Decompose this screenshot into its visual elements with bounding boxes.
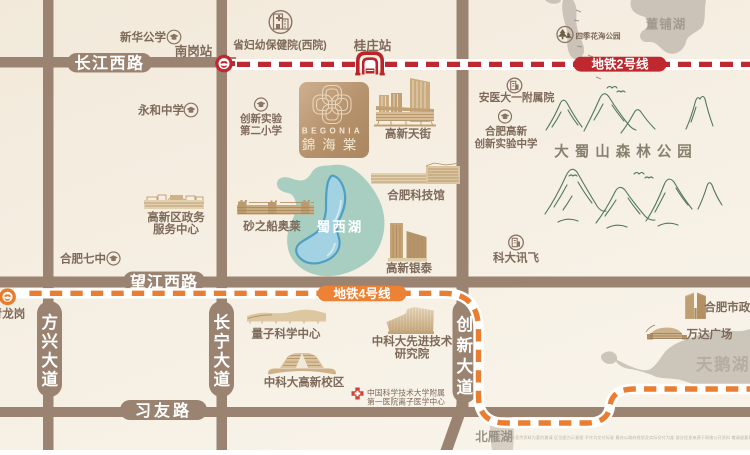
svg-text:董铺湖: 董铺湖 xyxy=(646,17,687,32)
svg-text:安医大一附属院: 安医大一附属院 xyxy=(479,90,555,104)
svg-text:合肥七中: 合肥七中 xyxy=(60,252,106,266)
svg-text:BEGONIA: BEGONIA xyxy=(302,127,363,136)
svg-text:量子科学中心: 量子科学中心 xyxy=(252,327,321,341)
svg-text:永和中学: 永和中学 xyxy=(137,103,184,117)
svg-text:道: 道 xyxy=(41,369,58,389)
svg-text:省妇幼保健院(西院): 省妇幼保健院(西院) xyxy=(232,38,327,52)
svg-text:南岗站: 南岗站 xyxy=(175,44,213,59)
svg-text:大: 大 xyxy=(41,350,58,370)
svg-text:中科大高新校区: 中科大高新校区 xyxy=(264,375,345,389)
svg-text:创新实验: 创新实验 xyxy=(239,112,282,125)
svg-text:习友路: 习友路 xyxy=(135,401,192,420)
svg-text:新华公学: 新华公学 xyxy=(120,30,166,44)
svg-text:宁: 宁 xyxy=(213,331,230,351)
svg-text:合肥高新: 合肥高新 xyxy=(484,125,527,138)
svg-text:北雁湖: 北雁湖 xyxy=(475,429,513,444)
svg-text:中国科学技术大学附属: 中国科学技术大学附属 xyxy=(367,388,445,398)
svg-text:高新银泰: 高新银泰 xyxy=(386,261,432,275)
svg-text:道: 道 xyxy=(213,369,230,389)
svg-text:中科大先进技术: 中科大先进技术 xyxy=(372,334,453,348)
svg-text:地铁4号线: 地铁4号线 xyxy=(334,286,391,301)
svg-text:本宣传资料为要约邀请 区位图为示意图 不作为交付标准 最终以: 本宣传资料为要约邀请 区位图为示意图 不作为交付标准 最终以政府规划及实际交付为… xyxy=(511,434,750,440)
svg-text:研究院: 研究院 xyxy=(395,347,430,361)
svg-text:大: 大 xyxy=(456,356,473,376)
svg-text:方: 方 xyxy=(41,312,58,332)
svg-text:万达广场: 万达广场 xyxy=(686,327,733,341)
svg-text:兴: 兴 xyxy=(41,332,58,351)
svg-text:长江西路: 长江西路 xyxy=(74,54,144,73)
svg-text:第二小学: 第二小学 xyxy=(240,124,282,137)
svg-text:新: 新 xyxy=(456,335,473,355)
svg-text:科大讯飞: 科大讯飞 xyxy=(493,251,539,265)
svg-text:第一医院离子医学中心: 第一医院离子医学中心 xyxy=(367,397,445,407)
svg-text:合肥市政务: 合肥市政务 xyxy=(704,300,750,314)
svg-text:高新天街: 高新天街 xyxy=(385,127,431,141)
svg-text:服务中心: 服务中心 xyxy=(153,222,199,236)
svg-text:四季花海公园: 四季花海公园 xyxy=(576,31,621,41)
svg-text:高新区政务: 高新区政务 xyxy=(147,210,205,224)
svg-text:大蜀山森林公园: 大蜀山森林公园 xyxy=(554,143,698,161)
svg-text:长: 长 xyxy=(213,312,230,332)
svg-text:大: 大 xyxy=(213,350,230,370)
svg-text:道: 道 xyxy=(456,377,473,397)
svg-text:蜀西湖: 蜀西湖 xyxy=(317,220,364,235)
svg-text:青龙岗: 青龙岗 xyxy=(0,307,25,321)
svg-text:錦海棠: 錦海棠 xyxy=(302,137,364,153)
svg-text:创新实验中学: 创新实验中学 xyxy=(474,137,538,150)
svg-text:合肥科技馆: 合肥科技馆 xyxy=(387,188,445,202)
svg-text:天鹅湖: 天鹅湖 xyxy=(696,354,750,374)
svg-text:地铁2号线: 地铁2号线 xyxy=(592,57,649,72)
svg-text:创: 创 xyxy=(455,314,473,334)
svg-text:砂之船奥莱: 砂之船奥莱 xyxy=(243,219,301,233)
svg-text:桂庄站: 桂庄站 xyxy=(353,38,392,53)
